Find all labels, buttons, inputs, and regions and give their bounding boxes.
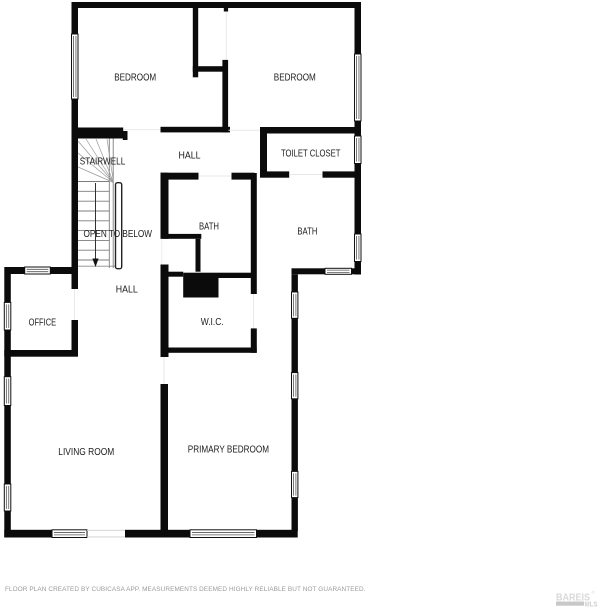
svg-text:BEDROOM: BEDROOM xyxy=(114,72,156,83)
svg-text:HALL: HALL xyxy=(179,150,201,161)
svg-text:TOILET CLOSET: TOILET CLOSET xyxy=(281,149,340,160)
svg-text:PRIMARY BEDROOM: PRIMARY BEDROOM xyxy=(188,444,269,455)
svg-text:MLS: MLS xyxy=(585,602,598,609)
svg-text:BEDROOM: BEDROOM xyxy=(274,73,316,84)
svg-text:OPEN TO BELOW: OPEN TO BELOW xyxy=(84,229,153,240)
svg-text:LIVING ROOM: LIVING ROOM xyxy=(58,447,114,458)
svg-text:STAIRWELL: STAIRWELL xyxy=(80,157,126,168)
svg-text:HALL: HALL xyxy=(116,285,138,296)
svg-text:W.I.C.: W.I.C. xyxy=(201,317,224,328)
svg-text:FLOOR PLAN CREATED BY CUBICASA: FLOOR PLAN CREATED BY CUBICASA APP. MEAS… xyxy=(5,586,366,593)
svg-text:BATH: BATH xyxy=(297,226,317,237)
svg-text:OFFICE: OFFICE xyxy=(29,317,57,328)
svg-text:BATH: BATH xyxy=(199,222,219,233)
